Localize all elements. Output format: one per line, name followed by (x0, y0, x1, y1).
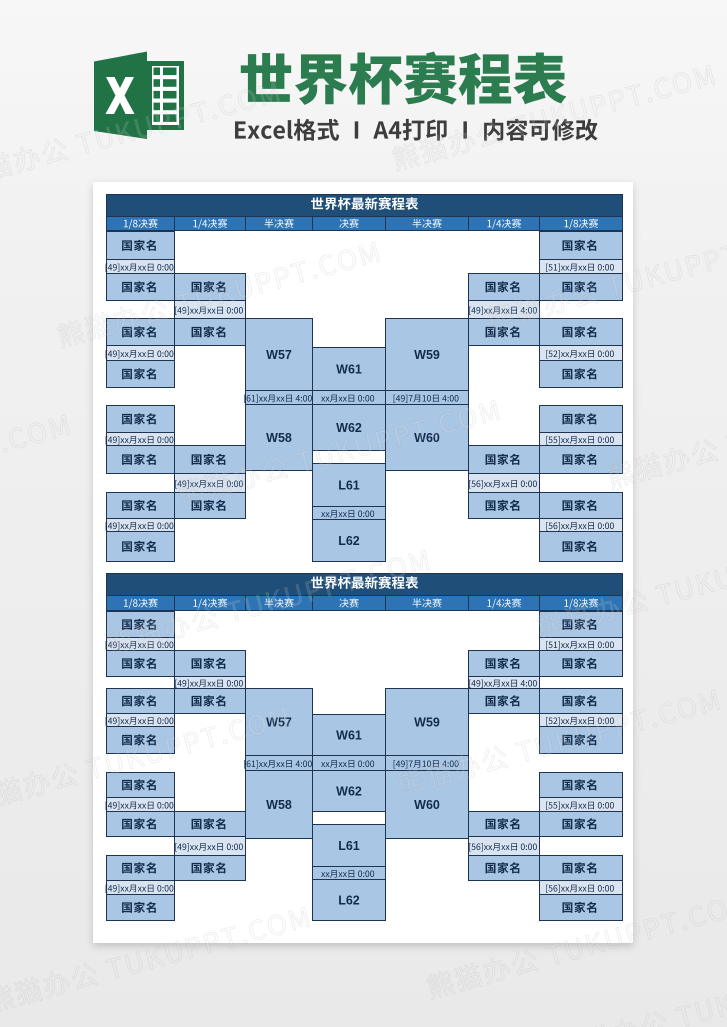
svg-text:L61: L61 (338, 839, 360, 853)
svg-text:W61: W61 (336, 363, 362, 377)
svg-text:W61: W61 (336, 729, 362, 743)
svg-text:W59: W59 (414, 348, 440, 362)
svg-text:W62: W62 (336, 785, 362, 799)
svg-text:W58: W58 (266, 431, 292, 445)
svg-text:W58: W58 (266, 798, 292, 812)
svg-text:W59: W59 (414, 716, 440, 730)
svg-text:L62: L62 (338, 894, 360, 908)
svg-text:W62: W62 (336, 421, 362, 435)
svg-text:L62: L62 (338, 534, 360, 548)
svg-text:W57: W57 (266, 348, 292, 362)
svg-text:W60: W60 (414, 798, 440, 812)
svg-text:L61: L61 (338, 479, 360, 493)
